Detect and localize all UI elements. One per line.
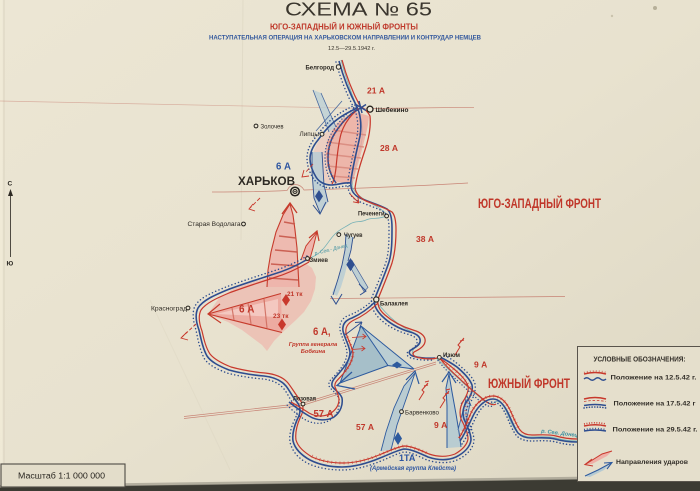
- svg-text:Барвенково: Барвенково: [405, 410, 440, 417]
- svg-text:Масштаб 1:1 000 000: Масштаб 1:1 000 000: [18, 471, 105, 481]
- svg-text:Лозовая: Лозовая: [293, 396, 316, 403]
- svg-text:Печенеги: Печенеги: [358, 211, 385, 218]
- svg-text:СХЕМА № 65: СХЕМА № 65: [285, 0, 432, 20]
- svg-text:6 А: 6 А: [239, 304, 255, 316]
- svg-text:Ю: Ю: [7, 261, 14, 268]
- svg-text:НАСТУПАТЕЛЬНАЯ ОПЕРАЦИЯ НА ХАР: НАСТУПАТЕЛЬНАЯ ОПЕРАЦИЯ НА ХАРЬКОВСКОМ Н…: [209, 34, 481, 41]
- svg-text:Положение на 17.5.42 г: Положение на 17.5.42 г: [614, 401, 696, 408]
- svg-text:57 А: 57 А: [356, 422, 374, 432]
- svg-text:57 А: 57 А: [314, 408, 334, 420]
- svg-text:21 А: 21 А: [367, 86, 385, 96]
- svg-text:Липцы: Липцы: [300, 131, 320, 138]
- svg-text:Положение на 12.5.42 г.: Положение на 12.5.42 г.: [611, 375, 697, 382]
- svg-text:9 А: 9 А: [434, 420, 447, 430]
- svg-text:Красноград: Красноград: [151, 306, 187, 313]
- svg-text:(Армейская группа Клейста): (Армейская группа Клейста): [370, 464, 456, 472]
- svg-text:Золочев: Золочев: [261, 124, 285, 131]
- svg-text:6 А: 6 А: [276, 161, 291, 173]
- svg-text:9 А: 9 А: [474, 360, 487, 370]
- svg-text:ЮЖНЫЙ ФРОНТ: ЮЖНЫЙ ФРОНТ: [488, 376, 571, 391]
- svg-text:12.5—29.5.1942 г.: 12.5—29.5.1942 г.: [328, 46, 375, 52]
- svg-text:С: С: [8, 181, 13, 188]
- svg-text:Группа генерала: Группа генерала: [289, 342, 338, 348]
- svg-text:Шебекино: Шебекино: [376, 106, 409, 114]
- svg-text:1ТА: 1ТА: [399, 453, 416, 463]
- svg-text:Положение на 29.5.42 г.: Положение на 29.5.42 г.: [613, 427, 698, 434]
- svg-text:ЮГО-ЗАПАДНЫЙ И ЮЖНЫЙ ФРОНТЫ: ЮГО-ЗАПАДНЫЙ И ЮЖНЫЙ ФРОНТЫ: [270, 23, 418, 32]
- svg-text:28 А: 28 А: [380, 143, 398, 153]
- svg-text:Змиев: Змиев: [310, 257, 329, 264]
- svg-text:6 А,: 6 А,: [313, 326, 331, 338]
- svg-text:23 тк: 23 тк: [273, 313, 289, 320]
- svg-text:Балаклея: Балаклея: [380, 301, 408, 308]
- svg-text:38 А: 38 А: [416, 234, 434, 244]
- svg-text:Белгород: Белгород: [306, 65, 335, 72]
- svg-text:Бобкина: Бобкина: [301, 348, 326, 355]
- svg-text:Направления ударов: Направления ударов: [616, 459, 688, 466]
- svg-text:21 тк: 21 тк: [287, 291, 303, 298]
- svg-text:Изюм: Изюм: [443, 352, 460, 359]
- svg-text:ЮГО-ЗАПАДНЫЙ ФРОНТ: ЮГО-ЗАПАДНЫЙ ФРОНТ: [478, 196, 602, 211]
- svg-text:УСЛОВНЫЕ ОБОЗНАЧЕНИЯ:: УСЛОВНЫЕ ОБОЗНАЧЕНИЯ:: [594, 355, 686, 364]
- svg-text:Чугуев: Чугуев: [344, 232, 363, 239]
- svg-text:ХАРЬКОВ: ХАРЬКОВ: [238, 174, 295, 188]
- svg-text:Старая Водолага: Старая Водолага: [188, 221, 242, 228]
